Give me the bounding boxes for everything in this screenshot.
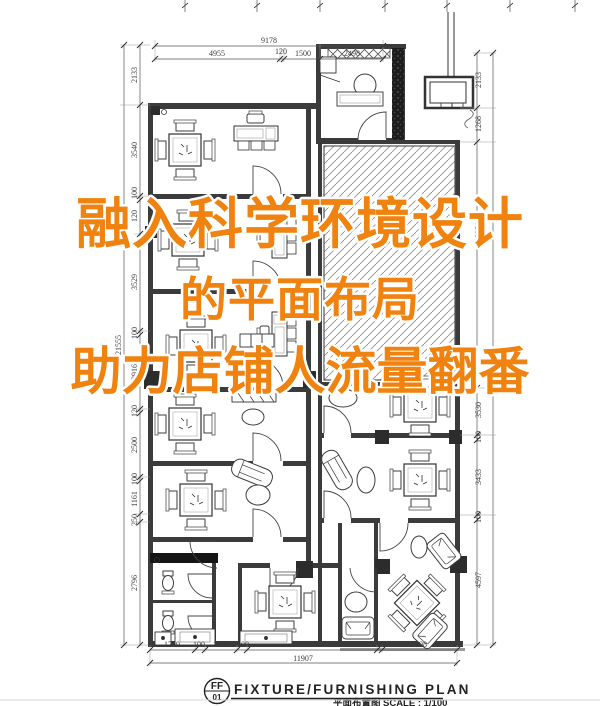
dim-bottom-seg: 100 xyxy=(373,640,385,649)
mahjong-table xyxy=(166,470,226,530)
overlay-text-line-1: 融入科学环境设计 xyxy=(76,193,524,255)
dim-left-seg: 1161 xyxy=(130,491,139,507)
dim-right-seg: 3530 xyxy=(474,402,483,418)
dim-bottom-seg: 1759 xyxy=(164,640,180,649)
toilet xyxy=(162,571,174,594)
floor-plan-svg: 9178 4955 120 1500 2498 1759 100 1500 10… xyxy=(0,0,600,706)
dim-top-total: 9178 xyxy=(261,36,277,45)
dim-bottom-total: 11907 xyxy=(293,654,313,663)
dim-bottom-seg: 100 xyxy=(193,640,205,649)
grid-ticks xyxy=(182,0,578,12)
dim-bottom-seg: 100 xyxy=(237,640,249,649)
overlay-text-line-2: 的平面布局 xyxy=(180,273,420,326)
dim-top-seg: 2498 xyxy=(344,49,360,58)
dim-right-seg: 3433 xyxy=(474,469,483,485)
dim-bottom-seg: 5390 xyxy=(304,640,320,649)
dim-left-seg: 2500 xyxy=(130,437,139,453)
dim-right-seg: 2133 xyxy=(474,72,483,88)
dim-left-seg: 100 xyxy=(130,473,139,485)
dim-left-seg: 2796 xyxy=(130,575,139,591)
side-table xyxy=(357,467,375,493)
dim-right-seg: 4597 xyxy=(474,572,483,588)
sheet-code: FF xyxy=(211,681,223,692)
plan-title: FIXTURE/FURNISHING PLAN xyxy=(234,682,471,697)
side-table xyxy=(246,485,270,505)
dim-right-seg: 100 xyxy=(474,511,483,523)
side-table xyxy=(345,592,367,612)
sheet-number: 01 xyxy=(213,693,222,702)
plan-scale: SCALE : 1/100 xyxy=(383,698,447,706)
dim-left-seg: 3540 xyxy=(130,142,139,158)
sofa xyxy=(342,617,374,639)
plan-title-cn: 平面布置图 xyxy=(333,697,381,706)
door-pivot-dot xyxy=(162,110,167,115)
chaise-lounge xyxy=(319,447,356,492)
side-table xyxy=(242,409,264,425)
dim-left-seg: 100 xyxy=(130,327,139,339)
office-desk xyxy=(234,111,278,150)
dim-right-seg: 1268 xyxy=(474,116,483,132)
dim-left-seg: 120 xyxy=(130,405,139,417)
dim-bottom-seg: 1500 xyxy=(213,640,229,649)
mahjong-table xyxy=(155,394,215,454)
mahjong-table xyxy=(390,450,450,510)
floor-plan-page: 9178 4955 120 1500 2498 1759 100 1500 10… xyxy=(0,0,600,706)
toilet xyxy=(162,611,174,634)
dim-top-seg: 1500 xyxy=(295,49,311,58)
overlay-text-line-3: 助力店铺人流量翻番 xyxy=(70,343,529,400)
mahjong-table xyxy=(155,120,215,180)
dim-left-seg: 250 xyxy=(130,514,139,526)
overlay-slogan: 融入科学环境设计 的平面布局 助力店铺人流量翻番 xyxy=(70,193,529,400)
dim-right-seg: 100 xyxy=(474,431,483,443)
mahjong-table xyxy=(255,572,315,632)
dim-bottom-seg: 2898 xyxy=(411,640,427,649)
dim-top-seg: 120 xyxy=(275,47,287,56)
dim-top-seg: 4955 xyxy=(209,49,225,58)
dim-left-seg: 2133 xyxy=(130,67,139,83)
detached-unit xyxy=(425,12,473,108)
textured-wall-strip xyxy=(392,48,404,140)
dim-left-seg: 3529 xyxy=(130,274,139,290)
side-table xyxy=(411,536,427,558)
title-block: FF 01 FIXTURE/FURNISHING PLAN 平面布置图 SCAL… xyxy=(205,679,471,706)
